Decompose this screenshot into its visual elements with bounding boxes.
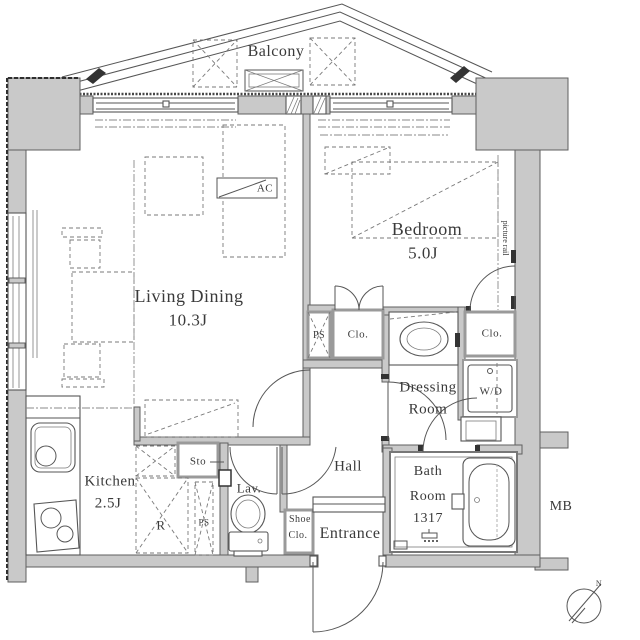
entrance-step <box>313 497 385 512</box>
toilet-icon <box>229 495 268 556</box>
window-bedroom <box>330 98 452 112</box>
closet-dressing-label: Clo. <box>482 329 503 340</box>
living-dining-size-label: 10.3J <box>169 312 208 329</box>
curtain-lines <box>95 120 450 135</box>
window-side <box>8 210 37 390</box>
closet-double-door <box>335 286 383 310</box>
washer-dryer-label: W/D <box>480 387 503 398</box>
floor-plan: Balcony Bedroom 5.0J picture rail Living… <box>0 0 640 640</box>
lavatory-label: Lav. <box>237 482 262 495</box>
wd-step <box>461 417 501 441</box>
dressing-room-label-2: Room <box>409 403 448 418</box>
balcony-skylight-right <box>310 38 355 85</box>
shoe-closet-label-2: Clo. <box>289 531 308 541</box>
balcony-label: Balcony <box>248 44 305 60</box>
sink-icon <box>31 423 75 472</box>
kitchen-label: Kitchen <box>85 475 136 490</box>
living-dining-label: Living Dining <box>135 287 244 305</box>
stove-icon <box>34 500 79 552</box>
floor-plan-drawing <box>0 0 640 640</box>
living-hall-door <box>253 370 310 427</box>
compass-north-label: N <box>596 580 602 588</box>
bedroom-size-label: 5.0J <box>408 245 438 262</box>
washer-space-outline <box>136 446 175 476</box>
ac-label: AC <box>257 184 273 195</box>
shoe-closet-label-1: Shoe <box>289 515 311 525</box>
refrigerator-label: R <box>156 519 165 532</box>
entrance-door <box>313 562 383 632</box>
kitchen-size-label: 2.5J <box>95 497 122 512</box>
dining-table-outline <box>145 157 203 215</box>
bath-label-1: Bath <box>414 465 442 479</box>
balcony-hatch-box <box>245 70 303 91</box>
tv-board-outline <box>145 400 238 437</box>
dressing-room-label-1: Dressing <box>399 381 456 396</box>
bath-size-label: 1317 <box>413 512 443 526</box>
bath-label-2: Room <box>410 490 446 504</box>
sofa-outline <box>62 228 134 387</box>
balcony-skylight-left <box>193 40 237 87</box>
ps-bedroom-label: PS <box>313 331 325 341</box>
washbasin-icon <box>389 312 460 365</box>
entrance-label: Entrance <box>320 526 381 542</box>
bedroom-label: Bedroom <box>392 220 463 238</box>
hall-door <box>282 447 336 494</box>
meter-box-label: MB <box>550 500 573 514</box>
wall-bottom <box>26 555 540 582</box>
bedroom-door <box>470 266 515 310</box>
closet-bedroom-label: Clo. <box>348 330 369 341</box>
ps-kitchen-label: PS <box>198 519 209 528</box>
ac-unit <box>217 125 285 257</box>
picture-rail-label: picture rail <box>501 221 509 256</box>
balcony-floor <box>62 79 476 94</box>
compass-icon <box>567 584 601 623</box>
window-living <box>93 98 238 112</box>
fridge-space-outline <box>136 478 188 553</box>
tp-holder-icon <box>219 470 231 486</box>
storage-label: Sto <box>190 457 206 468</box>
hall-label: Hall <box>334 460 362 475</box>
